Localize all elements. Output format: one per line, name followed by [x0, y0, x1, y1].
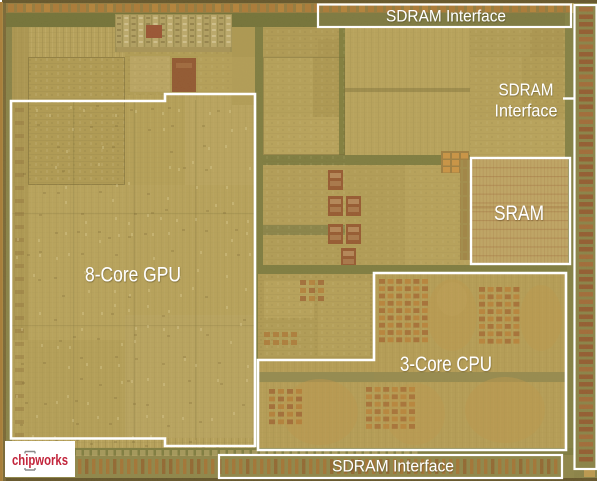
svg-text:8-Core GPU: 8-Core GPU [85, 264, 181, 287]
svg-text:Interface: Interface [495, 101, 558, 121]
svg-text:SDRAM Interface: SDRAM Interface [332, 457, 454, 476]
svg-text:SDRAM Interface: SDRAM Interface [386, 7, 506, 26]
svg-text:chipworks: chipworks [12, 452, 68, 469]
svg-text:SDRAM: SDRAM [499, 80, 554, 100]
svg-text:3-Core CPU: 3-Core CPU [400, 353, 492, 376]
svg-text:SRAM: SRAM [494, 202, 544, 225]
